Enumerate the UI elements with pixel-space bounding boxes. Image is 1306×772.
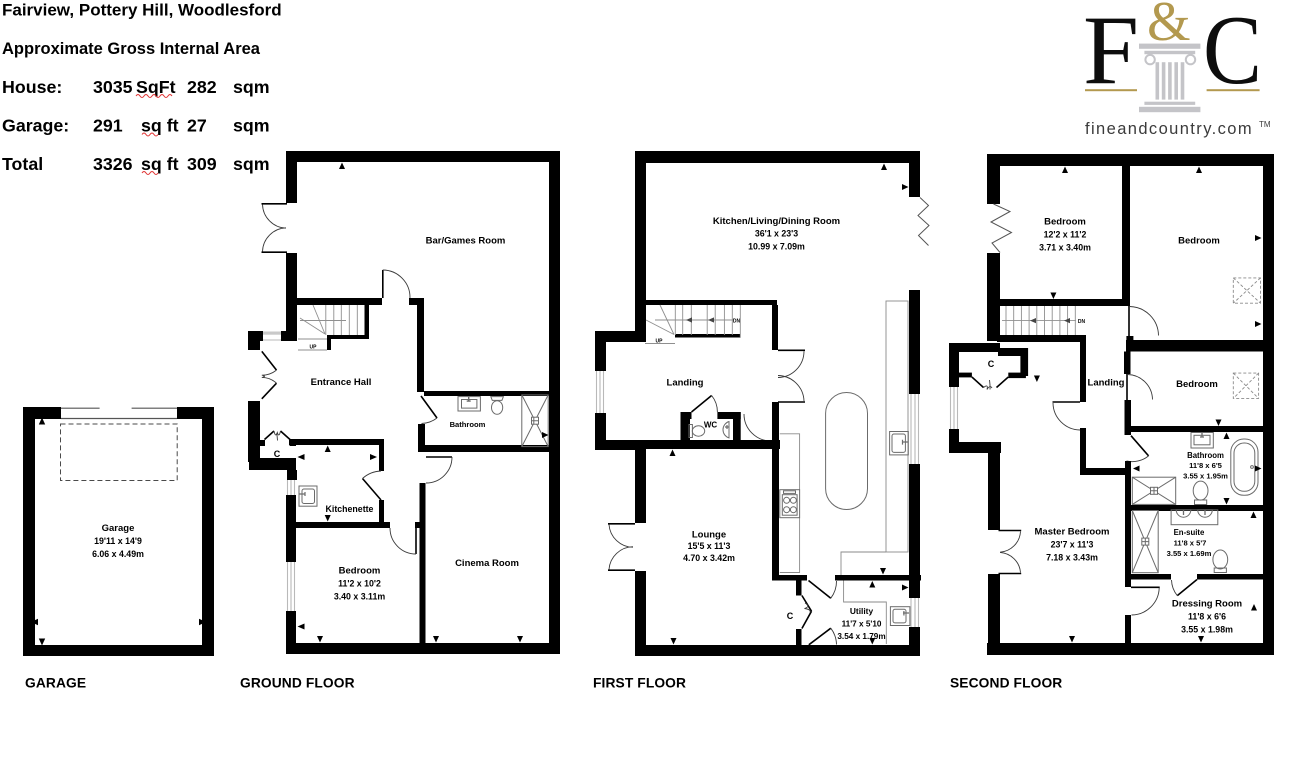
svg-text:Utility: Utility bbox=[850, 606, 874, 616]
svg-text:19'11 x 14'9: 19'11 x 14'9 bbox=[94, 536, 142, 546]
svg-text:WC: WC bbox=[704, 421, 718, 430]
svg-text:Cinema Room: Cinema Room bbox=[455, 558, 519, 569]
svg-text:11'8 x 6'5: 11'8 x 6'5 bbox=[1189, 461, 1223, 470]
svg-text:3326: 3326 bbox=[93, 154, 133, 174]
svg-text:FIRST FLOOR: FIRST FLOOR bbox=[593, 676, 686, 691]
svg-text:Bathroom: Bathroom bbox=[450, 420, 486, 429]
svg-text:Bar/Games Room: Bar/Games Room bbox=[426, 236, 506, 247]
svg-text:GROUND FLOOR: GROUND FLOOR bbox=[240, 676, 355, 691]
svg-text:3.40 x 3.11m: 3.40 x 3.11m bbox=[334, 592, 386, 602]
svg-text:En-suite: En-suite bbox=[1174, 528, 1205, 537]
svg-text:Master Bedroom: Master Bedroom bbox=[1035, 527, 1110, 538]
svg-text:Total: Total bbox=[2, 154, 43, 174]
svg-text:23'7 x 11'3: 23'7 x 11'3 bbox=[1051, 540, 1094, 550]
svg-text:10.99 x 7.09m: 10.99 x 7.09m bbox=[748, 241, 805, 251]
svg-text:TM: TM bbox=[1259, 120, 1271, 129]
svg-text:Bathroom: Bathroom bbox=[1187, 451, 1224, 460]
svg-text:Garage: Garage bbox=[102, 523, 135, 534]
svg-text:DN: DN bbox=[1078, 319, 1086, 325]
svg-text:C: C bbox=[988, 359, 995, 369]
svg-text:7.18 x 3.43m: 7.18 x 3.43m bbox=[1046, 553, 1098, 563]
svg-text:3.71 x 3.40m: 3.71 x 3.40m bbox=[1039, 243, 1091, 253]
svg-text:Kitchenette: Kitchenette bbox=[326, 504, 374, 514]
svg-text:UP: UP bbox=[310, 345, 318, 351]
svg-text:11'8 x 5'7: 11'8 x 5'7 bbox=[1174, 539, 1207, 548]
svg-text:Bedroom: Bedroom bbox=[1044, 217, 1086, 228]
svg-text:3.54 x 1.79m: 3.54 x 1.79m bbox=[837, 632, 885, 641]
svg-text:Dressing Room: Dressing Room bbox=[1172, 599, 1242, 610]
svg-text:Landing: Landing bbox=[1088, 378, 1125, 389]
svg-text:sq ft: sq ft bbox=[141, 116, 179, 136]
svg-text:sq ft: sq ft bbox=[141, 154, 179, 174]
svg-text:6.06 x 4.49m: 6.06 x 4.49m bbox=[92, 549, 144, 559]
svg-text:DN: DN bbox=[733, 319, 741, 325]
svg-text:Approximate Gross Internal Are: Approximate Gross Internal Area bbox=[2, 40, 261, 58]
svg-text:291: 291 bbox=[93, 116, 123, 136]
svg-text:3035: 3035 bbox=[93, 77, 133, 97]
svg-text:Fairview, Pottery Hill, Woodle: Fairview, Pottery Hill, Woodlesford bbox=[2, 1, 282, 20]
svg-text:3.55 x 1.95m: 3.55 x 1.95m bbox=[1183, 472, 1228, 481]
svg-text:SECOND FLOOR: SECOND FLOOR bbox=[950, 676, 1062, 691]
svg-text:15'5 x 11'3: 15'5 x 11'3 bbox=[688, 541, 731, 551]
svg-text:GARAGE: GARAGE bbox=[25, 676, 86, 691]
svg-text:C: C bbox=[787, 611, 794, 621]
svg-text:11'8 x 6'6: 11'8 x 6'6 bbox=[1188, 612, 1226, 622]
svg-text:Bedroom: Bedroom bbox=[1178, 236, 1220, 247]
svg-text:Kitchen/Living/Dining Room: Kitchen/Living/Dining Room bbox=[713, 216, 840, 227]
svg-text:sqm: sqm bbox=[233, 77, 270, 97]
svg-text:SqFt: SqFt bbox=[136, 77, 176, 97]
svg-text:27: 27 bbox=[187, 116, 207, 136]
svg-text:36'1 x 23'3: 36'1 x 23'3 bbox=[755, 229, 798, 239]
svg-text:3.55 x 1.98m: 3.55 x 1.98m bbox=[1181, 625, 1233, 635]
svg-text:Bedroom: Bedroom bbox=[1176, 379, 1218, 390]
svg-text:sqm: sqm bbox=[233, 154, 270, 174]
svg-text:309: 309 bbox=[187, 154, 217, 174]
svg-text:282: 282 bbox=[187, 77, 217, 97]
svg-text:Lounge: Lounge bbox=[692, 530, 726, 541]
svg-text:Landing: Landing bbox=[667, 378, 704, 389]
svg-text:C: C bbox=[274, 449, 281, 459]
svg-text:Garage:: Garage: bbox=[2, 116, 69, 136]
svg-text:12'2 x 11'2: 12'2 x 11'2 bbox=[1044, 230, 1087, 240]
svg-text:fineandcountry.com: fineandcountry.com bbox=[1085, 120, 1253, 138]
svg-text:11'7 x 5'10: 11'7 x 5'10 bbox=[842, 620, 882, 629]
svg-text:Bedroom: Bedroom bbox=[339, 566, 381, 577]
svg-text:UP: UP bbox=[656, 339, 664, 345]
svg-text:House:: House: bbox=[2, 77, 62, 97]
svg-text:3.55 x 1.69m: 3.55 x 1.69m bbox=[1167, 549, 1212, 558]
svg-text:sqm: sqm bbox=[233, 116, 270, 136]
svg-text:11'2 x 10'2: 11'2 x 10'2 bbox=[338, 579, 381, 589]
svg-text:4.70 x 3.42m: 4.70 x 3.42m bbox=[683, 553, 735, 563]
svg-text:Entrance Hall: Entrance Hall bbox=[311, 377, 372, 388]
